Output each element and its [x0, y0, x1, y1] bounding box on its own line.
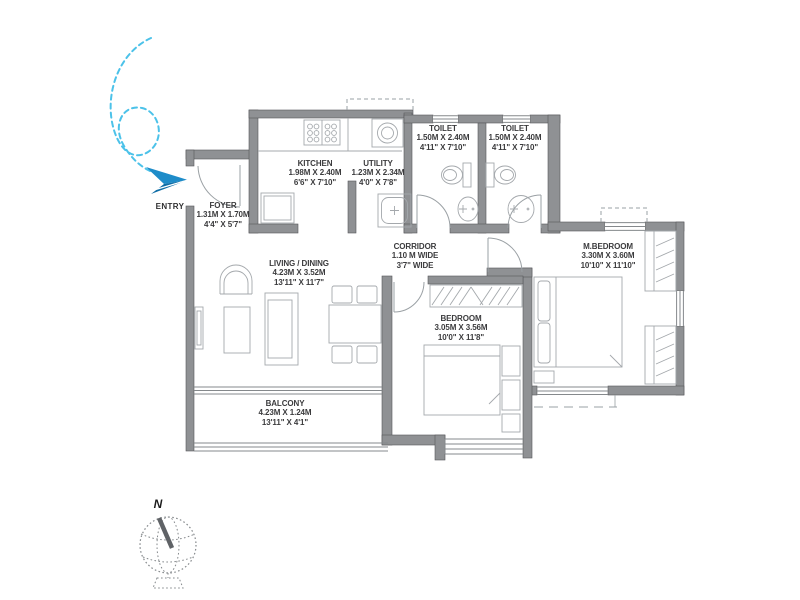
room-label-living-dining: LIVING / DINING 4.23M X 3.52M 13'11" X 1…: [269, 259, 329, 287]
compass-needle: [159, 518, 172, 548]
toilet2-basin: [508, 196, 534, 223]
wall-toilets-bottom-2: [450, 224, 509, 233]
wall-south-stub: [435, 435, 445, 460]
tv-unit: [195, 307, 203, 349]
room-size-m: 1.50M X 2.40M: [417, 133, 470, 142]
hob-stove: [304, 120, 340, 145]
wall-toilets-bottom-1: [404, 224, 417, 233]
room-size-m: 3.30M X 3.60M: [581, 251, 636, 260]
bedroom-side-units: [502, 346, 520, 432]
wall-left-main: [186, 206, 194, 451]
window-toilet2-top: [503, 115, 530, 123]
bedroom-wardrobe: [430, 285, 522, 307]
room-size-ft: 4'11" X 7'10": [417, 143, 470, 152]
furniture: [195, 118, 676, 432]
wall-bedroom-top: [428, 276, 523, 284]
kitchen-counter: [258, 118, 402, 151]
wall-left-stub: [186, 150, 194, 166]
room-size-m: 1.50M X 2.40M: [489, 133, 542, 142]
dining-table: [329, 305, 381, 343]
wall-toilet2-right: [548, 115, 560, 233]
room-name: UTILITY: [352, 159, 405, 168]
bedroom-door: [394, 282, 424, 312]
room-label-toilet-1: TOILET 1.50M X 2.40M 4'11" X 7'10": [417, 124, 470, 152]
wall-toilets-top-1: [404, 115, 433, 123]
room-size-ft: 3'7" WIDE: [392, 261, 438, 270]
paper-plane-icon: [146, 167, 188, 194]
toilet2-door: [508, 195, 541, 228]
wall-foyer-top: [186, 150, 252, 159]
room-label-corridor: CORRIDOR 1.10 M WIDE 3'7" WIDE: [392, 242, 438, 270]
room-size-m: 1.23M X 2.34M: [352, 168, 405, 177]
wall-toilets-divider: [478, 123, 486, 233]
duct-outline: [347, 99, 413, 110]
toilet1-wc: [442, 163, 472, 187]
room-size-m: 1.10 M WIDE: [392, 251, 438, 260]
north-label: N: [154, 498, 163, 510]
room-size-ft: 6'6" X 7'10": [289, 178, 342, 187]
room-size-ft: 13'11" X 4'1": [259, 418, 312, 427]
wall-living-bedroom-divider: [382, 276, 392, 445]
room-size-ft: 4'11" X 7'10": [489, 143, 542, 152]
room-size-m: 1.98M X 2.40M: [289, 168, 342, 177]
room-label-bedroom: BEDROOM 3.05M X 3.56M 10'0" X 11'8": [435, 314, 488, 342]
room-size-m: 3.05M X 3.56M: [435, 323, 488, 332]
room-name: M.BEDROOM: [581, 242, 636, 251]
room-name: BALCONY: [259, 399, 312, 408]
room-name: TOILET: [417, 124, 470, 133]
room-size-ft: 10'0" X 11'8": [435, 333, 488, 342]
wall-corridor-south: [487, 268, 532, 277]
wall-mbedroom-top-1: [548, 222, 605, 231]
room-name: CORRIDOR: [392, 242, 438, 251]
wall-mbedroom-right-1: [676, 222, 684, 291]
window-mbedroom-bottom: [537, 387, 608, 395]
room-label-foyer: FOYER 1.31M X 1.70M 4'4" X 5'7": [197, 201, 250, 229]
floor-plan-page: FOYER 1.31M X 1.70M 4'4" X 5'7" KITCHEN …: [0, 0, 800, 600]
room-size-m: 4.23M X 1.24M: [259, 408, 312, 417]
room-label-kitchen: KITCHEN 1.98M X 2.40M 6'6" X 7'10": [289, 159, 342, 187]
room-name: FOYER: [197, 201, 250, 210]
wall-toilets-top-2: [458, 115, 503, 123]
fridge: [261, 193, 294, 223]
room-size-m: 1.31M X 1.70M: [197, 210, 250, 219]
floor-plan-drawing: [0, 0, 800, 600]
compass-icon: [140, 517, 196, 588]
wall-utility-divider: [348, 181, 356, 233]
toilet1-door: [417, 195, 450, 228]
ac-ledge-outline: [601, 208, 647, 222]
room-size-ft: 10'10" X 11'10": [581, 261, 636, 270]
sofa: [265, 293, 298, 365]
room-name: BEDROOM: [435, 314, 488, 323]
room-label-toilet-2: TOILET 1.50M X 2.40M 4'11" X 7'10": [489, 124, 542, 152]
room-size-ft: 4'0" X 7'8": [352, 178, 405, 187]
room-name: TOILET: [489, 124, 542, 133]
balcony-slider: [194, 387, 382, 394]
compass-stand: [153, 573, 183, 588]
armchair: [220, 265, 252, 294]
washing-machine: [372, 119, 403, 147]
balcony-rail: [194, 443, 388, 451]
wall-bedroom-right: [523, 268, 532, 458]
wall-kitchen-top: [249, 110, 413, 118]
window-mbedroom-right: [676, 291, 684, 326]
window-bedroom-bottom: [445, 439, 523, 454]
coffee-table: [224, 307, 250, 353]
mbedroom-wardrobe-south: [645, 326, 676, 384]
room-size-m: 4.23M X 3.52M: [269, 268, 329, 277]
toilet1-basin: [458, 197, 478, 221]
toilet2-wc: [486, 163, 516, 187]
room-label-balcony: BALCONY 4.23M X 1.24M 13'11" X 4'1": [259, 399, 312, 427]
room-size-ft: 4'4" X 5'7": [197, 220, 250, 229]
mbedroom-wardrobe-north: [645, 231, 676, 291]
room-size-ft: 13'11" X 11'7": [269, 278, 329, 287]
window-mbedroom-top: [605, 222, 645, 231]
wall-mbedroom-right-2: [676, 326, 684, 395]
bedroom-bed: [424, 345, 500, 415]
mbedroom-door: [488, 238, 522, 272]
room-name: LIVING / DINING: [269, 259, 329, 268]
wall-mbedroom-bottom-2: [608, 386, 684, 395]
wall-kitchen-bottom: [249, 224, 298, 233]
entry-swirl: [111, 38, 159, 171]
mbedroom-bed: [534, 277, 622, 367]
room-label-m-bedroom: M.BEDROOM 3.30M X 3.60M 10'10" X 11'10": [581, 242, 636, 270]
room-label-utility: UTILITY 1.23M X 2.34M 4'0" X 7'8": [352, 159, 405, 187]
dining-chairs: [332, 286, 377, 363]
entry-label: ENTRY: [156, 203, 185, 211]
mbedroom-side-table: [534, 371, 554, 383]
wall-kitchen-left: [249, 110, 258, 233]
window-toilet1-top: [433, 115, 458, 123]
room-name: KITCHEN: [289, 159, 342, 168]
